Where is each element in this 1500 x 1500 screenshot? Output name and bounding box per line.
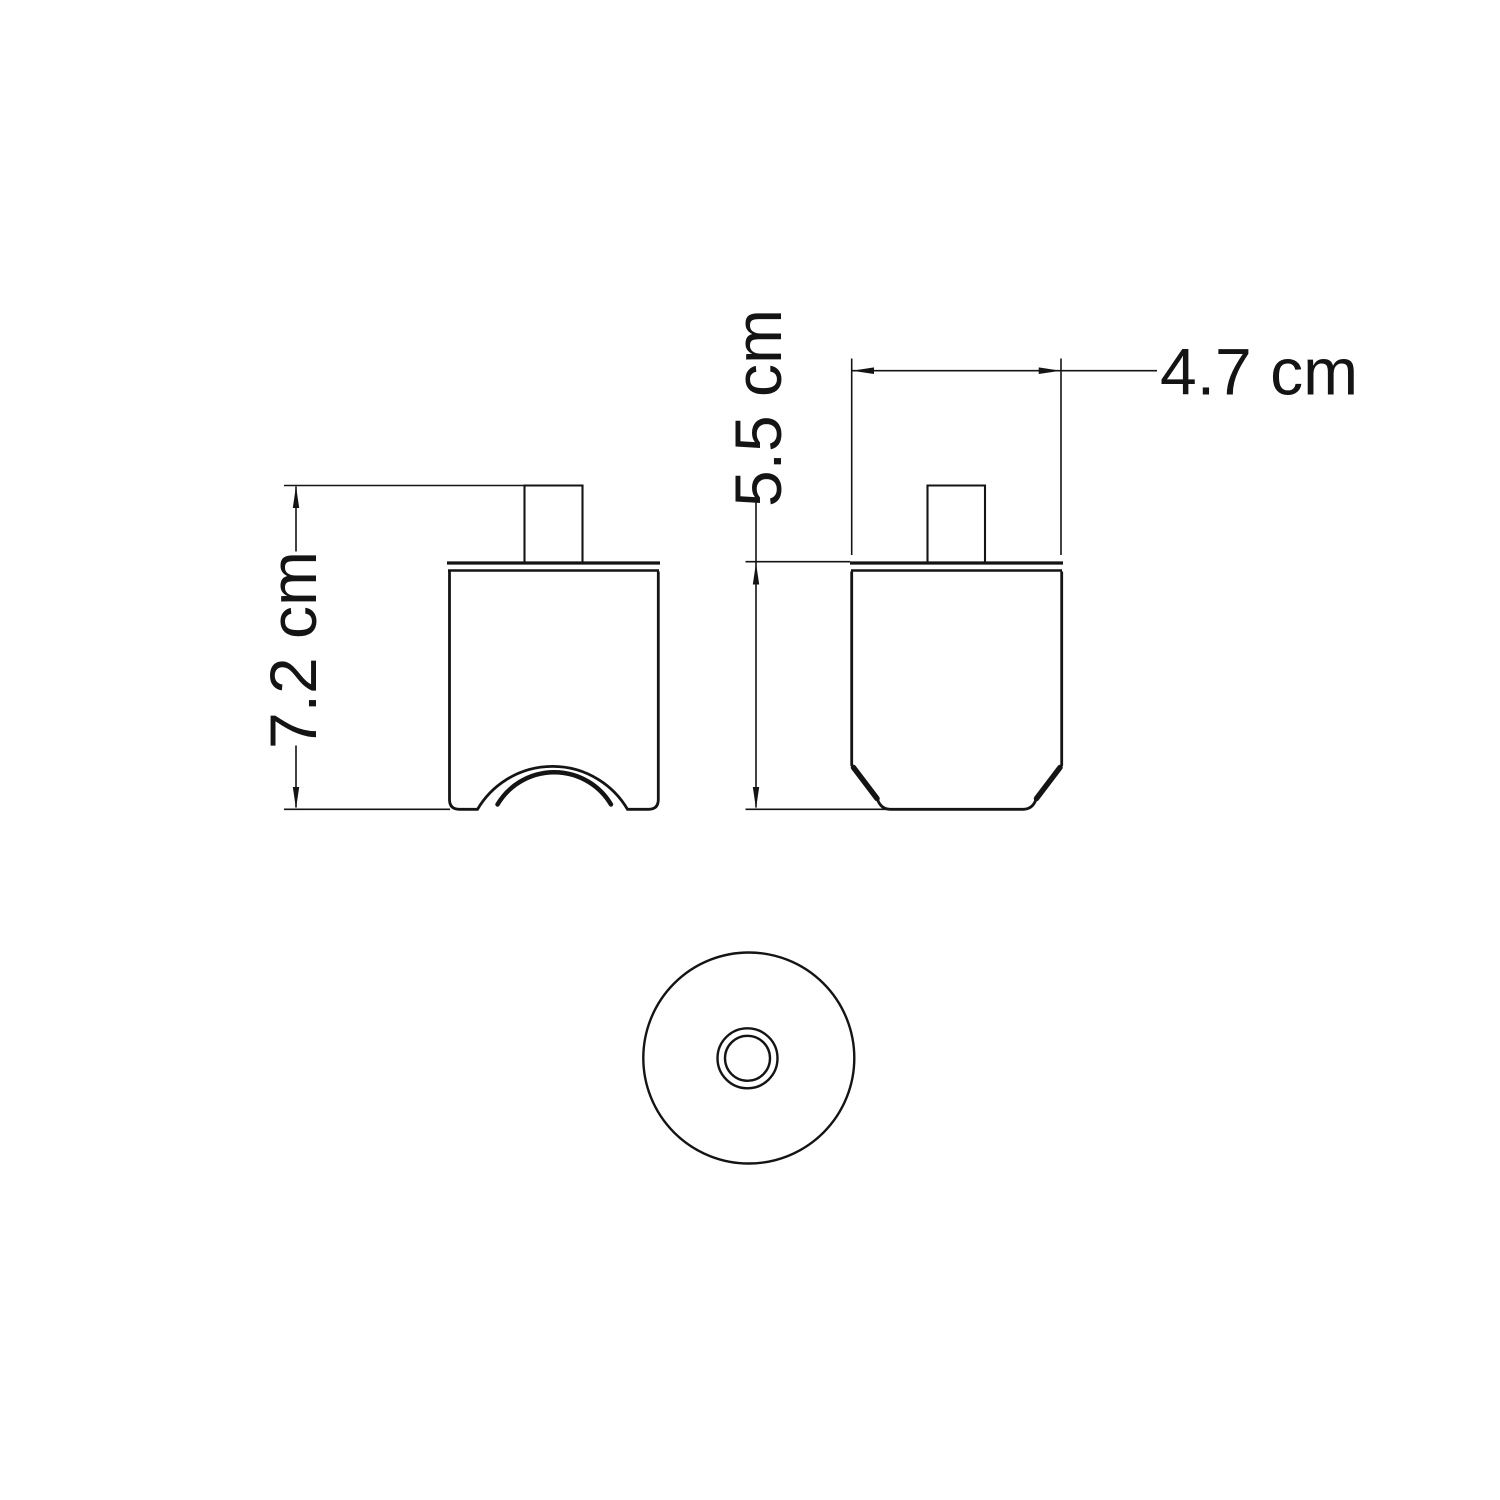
bottom-outer-circle <box>643 953 854 1164</box>
dimension-drawing: 7.2 cm 4.7 cm 5.5 cm <box>0 0 1500 1500</box>
technical-drawing-canvas: 7.2 cm 4.7 cm 5.5 cm <box>0 0 1500 1500</box>
arrow-down-icon <box>293 787 299 809</box>
side-stem-outline <box>928 486 986 562</box>
bottom-hub-inner-ring <box>725 1036 770 1081</box>
side-chamfer-left-edge <box>854 768 878 799</box>
bottom-hub-outer-ring <box>718 1028 778 1088</box>
side-width-label: 4.7 cm <box>1160 335 1358 409</box>
arrow-down-icon <box>753 787 759 809</box>
side-view: 4.7 cm 5.5 cm <box>721 309 1358 809</box>
side-height-label: 5.5 cm <box>721 309 795 507</box>
arrow-up-icon <box>753 563 759 585</box>
front-height-dimension: 7.2 cm <box>256 486 330 809</box>
arrow-up-icon <box>293 486 299 508</box>
side-height-dimension: 5.5 cm <box>721 309 795 809</box>
front-stem-outline <box>525 486 583 562</box>
front-view: 7.2 cm <box>256 486 660 810</box>
side-body-outline <box>852 572 1062 810</box>
front-height-label: 7.2 cm <box>256 551 330 749</box>
arrow-right-icon <box>1039 367 1061 374</box>
side-chamfer-right-edge <box>1037 768 1061 799</box>
bottom-view <box>643 953 854 1164</box>
arrow-left-icon <box>852 367 874 374</box>
